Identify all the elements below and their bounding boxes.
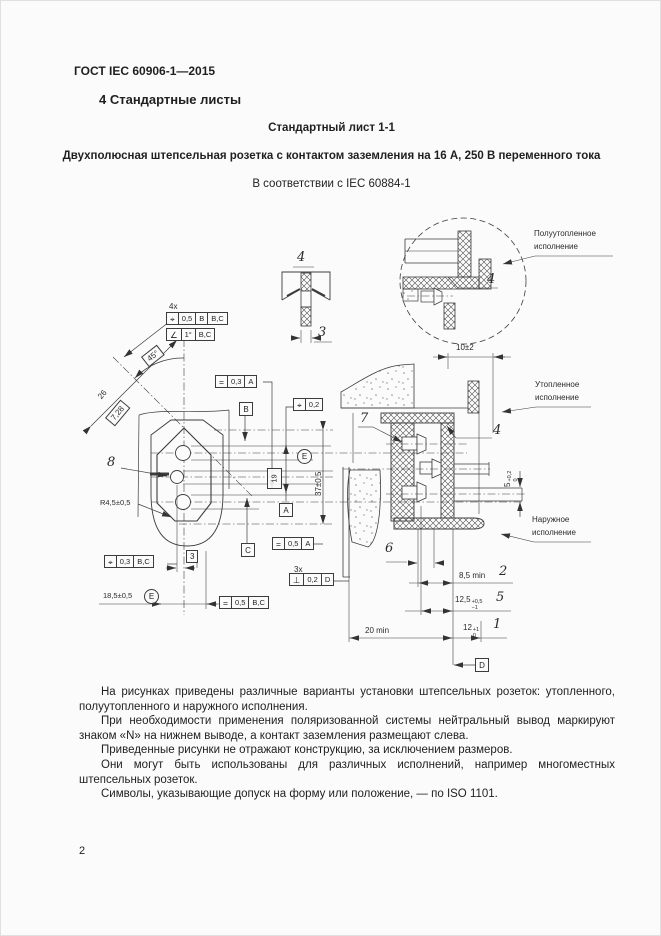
dim-r4-5: R4,5±0,5 [100,498,130,507]
datum-B: B [239,402,253,416]
fcf-angularity-1deg: ∠1°B,C [167,328,215,341]
item-8-callout: 8 [107,456,115,469]
variant-label-surface: Наружное исполнение [532,513,576,539]
item-4-callout: 4 [487,273,495,286]
dim-12-5-tol: 12,5+0,5−1 [455,595,482,611]
document-page: ГОСТ IEC 60906-1—2015 4 Стандартные лист… [0,0,661,936]
dim-37: 37±0,5 [314,472,323,496]
angularity-tolerance-icon: ∠ [166,328,182,341]
fcf-parallel-0-5-A: =0,5A [273,537,314,550]
page-number: 2 [79,845,85,857]
variant-label-flush: Утопленное исполнение [535,378,579,404]
envelope-symbol: E [144,589,159,604]
note-paragraph: Приведенные рисунки не отражают конструк… [79,743,615,758]
item-6-callout: 6 [385,542,393,555]
notes-block: На рисунках приведены различные варианты… [79,685,615,802]
fcf-position-0-2: ⌖0,2 [294,398,323,411]
note-paragraph: При необходимости применения поляризован… [79,714,615,743]
fcf-perpendicular-0-2-D: ⊥0,2D [290,573,334,586]
dim-12-tol: 12+10 [463,623,479,639]
dim-3-offset: 3 [186,550,198,563]
fcf-position-0-3-BC: ⌖0,3B,C [105,555,154,568]
dim-8-5-min: 8,5 min [459,571,485,580]
fcf-position-0-5: ⌖0,5BB,C [167,312,228,325]
item-7-callout: 7 [360,412,368,425]
fcf-parallel-0-3-A: =0,3A [216,375,257,388]
dim-5-tol: 5+0,20 [503,471,519,487]
datum-C: C [241,543,255,557]
item-5-callout: 5 [496,591,504,604]
dim-10-2: 10±2 [456,343,474,352]
dim-20-min: 20 min [365,626,389,635]
item-4-callout: 4 [297,251,305,264]
datum-D: D [475,658,489,672]
item-4-callout: 4 [493,424,501,437]
note-paragraph: Они могут быть использованы для различны… [79,758,615,787]
perpendicularity-tolerance-icon: ⊥ [289,573,304,586]
variant-label-semi-flush: Полуутопленное исполнение [534,227,596,253]
item-1-callout: 1 [493,618,501,631]
note-paragraph: Символы, указывающие допуск на форму или… [79,787,615,802]
envelope-symbol: E [297,449,312,464]
dim-19: 19 [267,468,282,489]
fcf-parallel-0-5-BC: =0,5B,C [220,596,269,609]
note-paragraph: На рисунках приведены различные варианты… [79,685,615,714]
datum-A: A [279,503,293,517]
dim-18-5: 18,5±0,5 [103,591,132,600]
item-3-callout: 3 [318,326,326,339]
item-2-callout: 2 [499,565,507,578]
count-4x-label: 4x [169,302,177,311]
